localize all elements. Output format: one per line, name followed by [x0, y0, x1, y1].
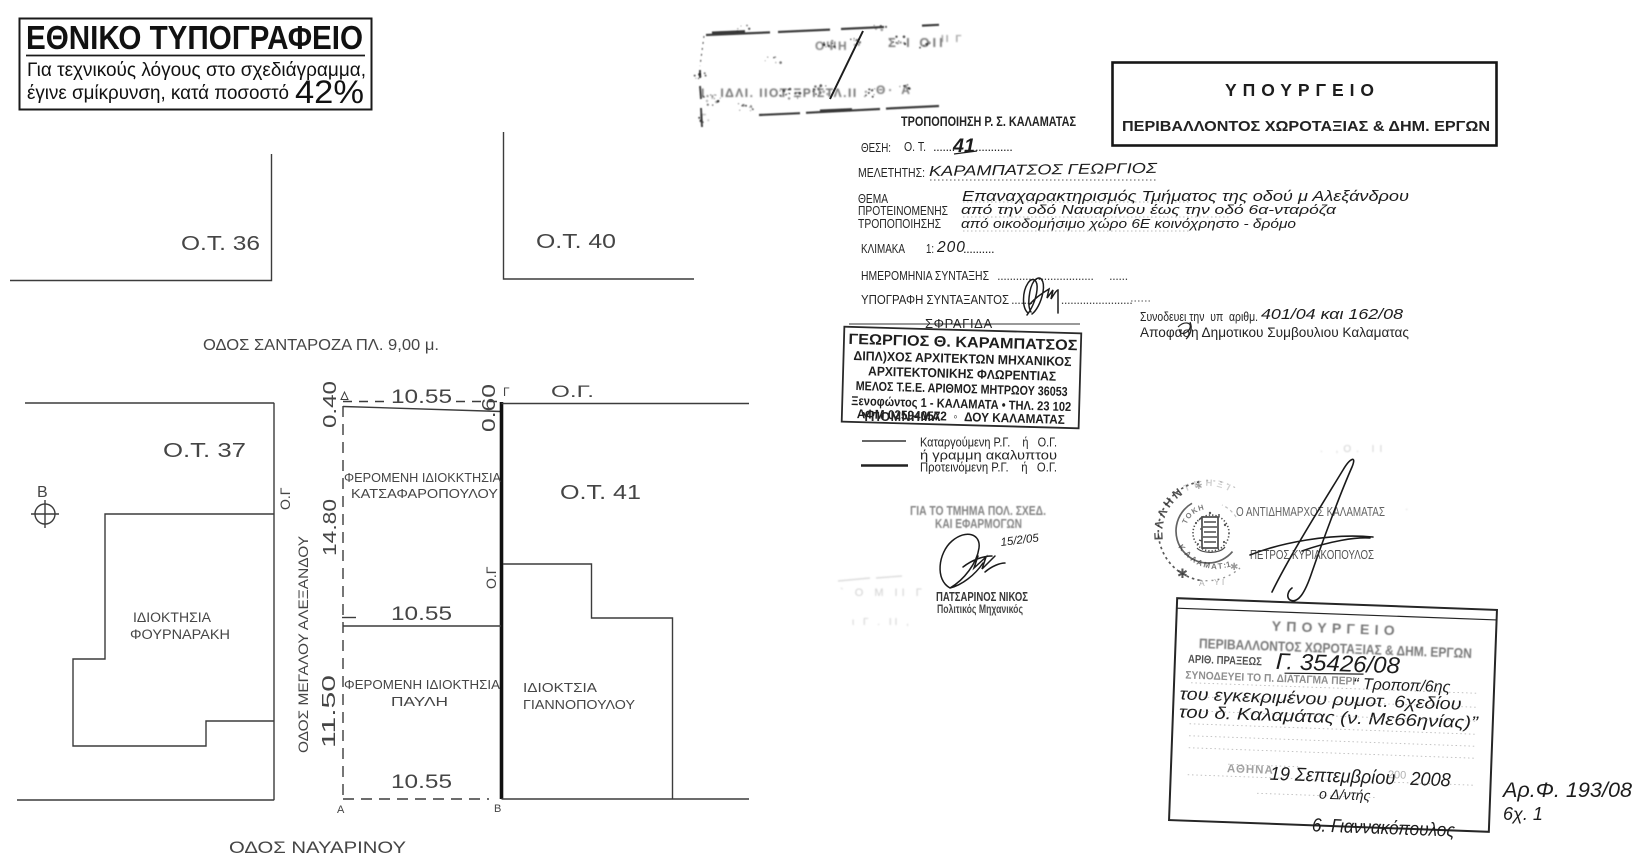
svg-text:ΥΠΟΓΡΑΦΗ ΣΥΝΤΑΞΑΝΤΟΣ: ΥΠΟΓΡΑΦΗ ΣΥΝΤΑΞΑΝΤΟΣ — [861, 292, 1009, 307]
svg-text:ΙΔΙΟΚΤΗΣΙΑ: ΙΔΙΟΚΤΗΣΙΑ — [133, 610, 211, 625]
svg-text:O.T. 40: O.T. 40 — [536, 231, 616, 253]
svg-text:ΠΕΤΡΟΣ ΚΥΡΙΑΚΟΠΟΥΛΟΣ: ΠΕΤΡΟΣ ΚΥΡΙΑΚΟΠΟΥΛΟΣ — [1250, 548, 1374, 562]
svg-text:ι Γ . ΙΙ ,: ι Γ . ΙΙ , — [852, 617, 912, 628]
svg-text:15/2/05: 15/2/05 — [1000, 532, 1040, 549]
svg-text:O.T. 37: O.T. 37 — [163, 440, 246, 462]
svg-text:B: B — [494, 803, 501, 815]
svg-text:..........: .......... — [963, 241, 994, 256]
svg-text:ΙΙ Γ: ΙΙ Γ — [941, 34, 963, 45]
svg-text:Συνοδευει την υπ αριθμ.: Συνοδευει την υπ αριθμ. — [1140, 309, 1258, 324]
svg-text:6χ. 1: 6χ. 1 — [1503, 804, 1543, 824]
svg-text:11.50: 11.50 — [319, 675, 339, 748]
svg-text:Ο.Γ: Ο.Γ — [277, 487, 293, 510]
svg-text:έγινε σμίκρυνση, κατά ποσοστό: έγινε σμίκρυνση, κατά ποσοστό — [27, 82, 289, 104]
svg-text:10.55: 10.55 — [391, 387, 452, 408]
svg-text:Γ.: Γ. — [700, 113, 712, 124]
svg-text:Ο ΑΝΤΙΔΗΜΑΡΧΟΣ ΚΑΛΑΜΑΤΑΣ: Ο ΑΝΤΙΔΗΜΑΡΧΟΣ ΚΑΛΑΜΑΤΑΣ — [1236, 505, 1385, 519]
svg-text:ΕΘΝΙΚΟ ΤΥΠΟΓΡΑΦΕΙΟ: ΕΘΝΙΚΟ ΤΥΠΟΓΡΑΦΕΙΟ — [26, 19, 363, 56]
svg-text:ΥΠΟΥΡΓΕΙΟ: ΥΠΟΥΡΓΕΙΟ — [1271, 618, 1400, 639]
svg-text:ο Δ/ντής: ο Δ/ντής — [1319, 786, 1371, 804]
svg-text:ΠΑΥΛΗ: ΠΑΥΛΗ — [391, 694, 448, 709]
svg-text:ΟΔΟΣ ΝΑΥΑΡΙΝΟΥ: ΟΔΟΣ ΝΑΥΑΡΙΝΟΥ — [229, 838, 406, 857]
svg-text:✱: ✱ — [1177, 566, 1188, 581]
svg-text:ΦΕΡΟΜΕΝΗ ΙΔΙΟΚΤΗΣΙΑ: ΦΕΡΟΜΕΝΗ ΙΔΙΟΚΤΗΣΙΑ — [344, 677, 500, 692]
svg-text:B: B — [37, 484, 48, 501]
svg-text:ΤΡΟΠΟΠΟΙΗΣΗ Ρ. Σ. ΚΑΛΑΜΑΤΑΣ: ΤΡΟΠΟΠΟΙΗΣΗ Ρ. Σ. ΚΑΛΑΜΑΤΑΣ — [901, 114, 1076, 129]
svg-text:ΚΑΡΑΜΠΑΤΣΟΣ ΓΕΩΡΓΙΟΣ: ΚΑΡΑΜΠΑΤΣΟΣ ΓΕΩΡΓΙΟΣ — [929, 161, 1159, 180]
svg-text:✱: ✱ — [1195, 481, 1203, 491]
svg-text:ΟΔΟΣ ΜΕΓΑΛΟΥ ΑΛΕΞΑΝΔΟΥ: ΟΔΟΣ ΜΕΓΑΛΟΥ ΑΛΕΞΑΝΔΟΥ — [295, 535, 311, 753]
svg-text:ΑΘΗΝΑ: ΑΘΗΝΑ — [1227, 763, 1274, 777]
svg-text:Ο.Γ: Ο.Γ — [483, 566, 499, 589]
svg-text:10.55: 10.55 — [391, 772, 452, 793]
svg-text:ΘΕΣΗ:: ΘΕΣΗ: — [861, 140, 891, 155]
svg-text:ΚΛΙΜΑΚΑ: ΚΛΙΜΑΚΑ — [861, 241, 905, 256]
svg-text:ΙΔΙΟΚΤΣΙΑ: ΙΔΙΟΚΤΣΙΑ — [523, 680, 597, 695]
svg-text:ΓΙΑΝΝΟΠΟΥΛΟΥ: ΓΙΑΝΝΟΠΟΥΛΟΥ — [523, 697, 635, 712]
svg-text:401/04 και 162/08: 401/04 και 162/08 — [1261, 306, 1404, 323]
svg-text:............: ............ — [975, 139, 1012, 154]
svg-text:ΥΠΟΜΝΗΜΑ: ΥΠΟΜΝΗΜΑ — [862, 410, 941, 424]
svg-text:ΥΠΟΥΡΓΕΙΟ: ΥΠΟΥΡΓΕΙΟ — [1225, 80, 1382, 100]
svg-text:. ,Ο. ΙΙ: . ,Ο. ΙΙ — [1320, 444, 1387, 455]
svg-text:A: A — [337, 804, 345, 816]
svg-text:ΚΑΙ ΕΦΑΡΜΟΓΩΝ: ΚΑΙ ΕΦΑΡΜΟΓΩΝ — [935, 516, 1022, 531]
svg-text:Προτεινόμενη Ρ.Γ. ή Ο.Γ.: Προτεινόμενη Ρ.Γ. ή Ο.Γ. — [920, 461, 1057, 475]
svg-text:ΠΑΤΣΑΡΙΝΟΣ ΝΙΚΟΣ: ΠΑΤΣΑΡΙΝΟΣ ΝΙΚΟΣ — [936, 590, 1028, 604]
svg-text:Α: Α — [1199, 578, 1205, 588]
svg-text:10.55: 10.55 — [391, 604, 452, 625]
svg-text:.......: ....... — [933, 139, 955, 154]
svg-text:Ο. Τ.: Ο. Τ. — [904, 139, 926, 154]
svg-text:Ο.Τ. 41: Ο.Τ. 41 — [560, 482, 641, 504]
svg-text:..............................: ............................... ...... — [997, 268, 1128, 283]
svg-text:ΠΡΟΤΕΙΝΟΜΕΝΗΣ: ΠΡΟΤΕΙΝΟΜΕΝΗΣ — [858, 204, 948, 218]
svg-text:ΑΡΙΘ. ΠΡΑΞΕΩΣ: ΑΡΙΘ. ΠΡΑΞΕΩΣ — [1188, 654, 1262, 669]
svg-text:14.80: 14.80 — [320, 499, 340, 556]
svg-text:·: · — [1405, 504, 1408, 515]
svg-text:` Ο Μ ΙΙ Γ: ` Ο Μ ΙΙ Γ — [840, 587, 926, 599]
svg-text:0.60: 0.60 — [479, 384, 499, 432]
svg-text:1:: 1: — [926, 241, 934, 256]
svg-text:ΦΟΥΡΝΑΡΑΚΗ: ΦΟΥΡΝΑΡΑΚΗ — [130, 627, 230, 642]
svg-text:ΤΡΟΠΟΠΟΙΗΣΗΣ: ΤΡΟΠΟΠΟΙΗΣΗΣ — [858, 217, 941, 231]
svg-text:6. Γιαννακόπουλος: 6. Γιαννακόπουλος — [1312, 815, 1456, 841]
svg-text:ΟΔΟΣ ΣΑΝΤΑΡΟΖΑ ΠΛ. 9,00 μ.: ΟΔΟΣ ΣΑΝΤΑΡΟΖΑ ΠΛ. 9,00 μ. — [203, 337, 439, 354]
svg-text:42%: 42% — [295, 74, 364, 110]
svg-text:Ο.Γ.: Ο.Γ. — [551, 382, 594, 401]
svg-text:ΚΑΤΣΑΦΑΡΟΠΟΥΛΟΥ: ΚΑΤΣΑΦΑΡΟΠΟΥΛΟΥ — [351, 486, 498, 501]
svg-text:0.40: 0.40 — [320, 381, 340, 428]
svg-text:από την οδό Ναυαρίνου έως τη: από την οδό Ναυαρίνου έως την οδό 6α-ντα… — [961, 202, 1337, 217]
svg-text:Πολιτικός Μηχανικός: Πολιτικός Μηχανικός — [937, 604, 1023, 616]
svg-text:✱: ✱ — [1230, 562, 1238, 573]
svg-text:ΠΕΡΙΒΑΛΛΟΝΤΟΣ ΧΩΡΟΤΑΞΙΑΣ &: ΠΕΡΙΒΑΛΛΟΝΤΟΣ ΧΩΡΟΤΑΞΙΑΣ & ΔΗΜ. ΕΡΓΩΝ — [1122, 118, 1490, 135]
svg-text:Αρ.Φ. 193/08: Αρ.Φ. 193/08 — [1501, 779, 1632, 802]
svg-text:200: 200 — [936, 239, 966, 256]
svg-text:Καταργούμενη Ρ.Γ. ή Ο.Γ.: Καταργούμενη Ρ.Γ. ή Ο.Γ. — [920, 436, 1057, 450]
svg-text:Υ Ι: Υ Ι — [1214, 577, 1224, 587]
svg-text:O.T. 36: O.T. 36 — [181, 233, 260, 255]
svg-text:από οικοδομήσιμο χώρο 6Ε κο: από οικοδομήσιμο χώρο 6Ε κοινόχρηστο - δ… — [961, 216, 1296, 231]
svg-text:ΦΕΡΟΜΕΝΗ ΙΔΙΟΚΚΤΗΣΙΑ: ΦΕΡΟΜΕΝΗ ΙΔΙΟΚΚΤΗΣΙΑ — [344, 470, 501, 485]
svg-text:ΗΜΕΡΟΜΗΝΙΑ ΣΥΝΤΑΞΗΣ: ΗΜΕΡΟΜΗΝΙΑ ΣΥΝΤΑΞΗΣ — [861, 268, 989, 283]
svg-text:Ι., ΙΔΛΙ. ΙΙΟΤ ΞΡΙΣΤΛ.ΙΙ: Ι., ΙΔΛΙ. ΙΙΟΤ ΞΡΙΣΤΛ.ΙΙ — [701, 86, 858, 100]
svg-text:ΜΕΛΕΤΗΤΗΣ:: ΜΕΛΕΤΗΤΗΣ: — [858, 165, 925, 180]
svg-text:Α: Α — [1211, 562, 1217, 571]
svg-text:Μ: Μ — [1203, 560, 1212, 570]
svg-text:Γ: Γ — [503, 385, 510, 399]
